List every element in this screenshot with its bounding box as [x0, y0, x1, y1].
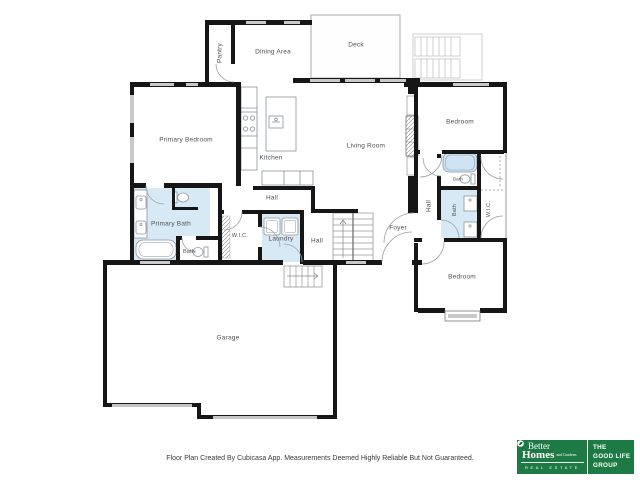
room-label-bath-right: Bath: [452, 204, 458, 216]
deck-stairs: [413, 34, 482, 80]
leaf-icon: [517, 440, 524, 447]
room-label-bedroom-lower: Bedroom: [448, 274, 476, 281]
room-label-laundry: Laundry: [269, 236, 294, 243]
garage-stairs: [284, 266, 322, 287]
ghl-line1: THE: [593, 444, 634, 453]
room-label-garage: Garage: [217, 335, 240, 342]
toilet-icon: [204, 247, 208, 257]
room-label-foyer: Foyer: [389, 225, 407, 232]
ghl-line2: GOOD LIFE: [593, 453, 634, 462]
room-label-dining-area: Dining Area: [255, 49, 291, 56]
room-label-bath-upper-right: Bath: [453, 177, 463, 182]
ghl-line3: GROUP: [593, 462, 634, 471]
room-label-pantry: Pantry: [217, 43, 224, 63]
kitchen-fixtures: [241, 87, 313, 185]
stove-icon: [241, 112, 257, 136]
room-label-kitchen: Kitchen: [259, 155, 282, 162]
garage-doors: [112, 404, 317, 419]
floorplan-page: Pantry Dining Area Deck Primary Bedroom …: [0, 0, 640, 480]
room-label-hall-lower: Hall: [311, 238, 323, 245]
vanity-icon: [464, 222, 477, 237]
room-label-wic-right: W.I.C.: [486, 201, 492, 217]
bhg-real-estate-text: REAL ESTATE: [521, 462, 584, 470]
toilet-icon: [471, 174, 475, 184]
brand-logos: Better Homes and Gardens REAL ESTATE THE…: [517, 440, 634, 474]
room-label-bedroom-upper: Bedroom: [446, 119, 474, 126]
kitchen-counter-south: [262, 171, 313, 185]
sink-icon: [136, 196, 146, 209]
bay-window: [445, 311, 480, 321]
room-label-primary-bedroom: Primary Bedroom: [159, 137, 213, 144]
room-label-wic-middle: W.I.C.: [232, 233, 248, 239]
room-label-bath-left: Bath: [183, 249, 195, 255]
room-label-deck: Deck: [348, 42, 364, 49]
room-label-primary-bath: Primary Bath: [151, 221, 191, 228]
main-stairs: [333, 213, 373, 264]
sink-icon: [136, 221, 146, 234]
bhg-and-gardens-text: and Gardens: [556, 450, 576, 459]
bhg-homes-text: Homes: [522, 451, 554, 460]
better-homes-gardens-logo: Better Homes and Gardens REAL ESTATE: [517, 440, 588, 474]
vanity-icon: [464, 196, 477, 211]
room-label-living-room: Living Room: [347, 143, 385, 150]
room-label-hall-middle: Hall: [266, 195, 278, 202]
good-life-group-logo: THE GOOD LIFE GROUP: [588, 440, 634, 474]
room-label-hall-right: Hall: [426, 200, 433, 212]
